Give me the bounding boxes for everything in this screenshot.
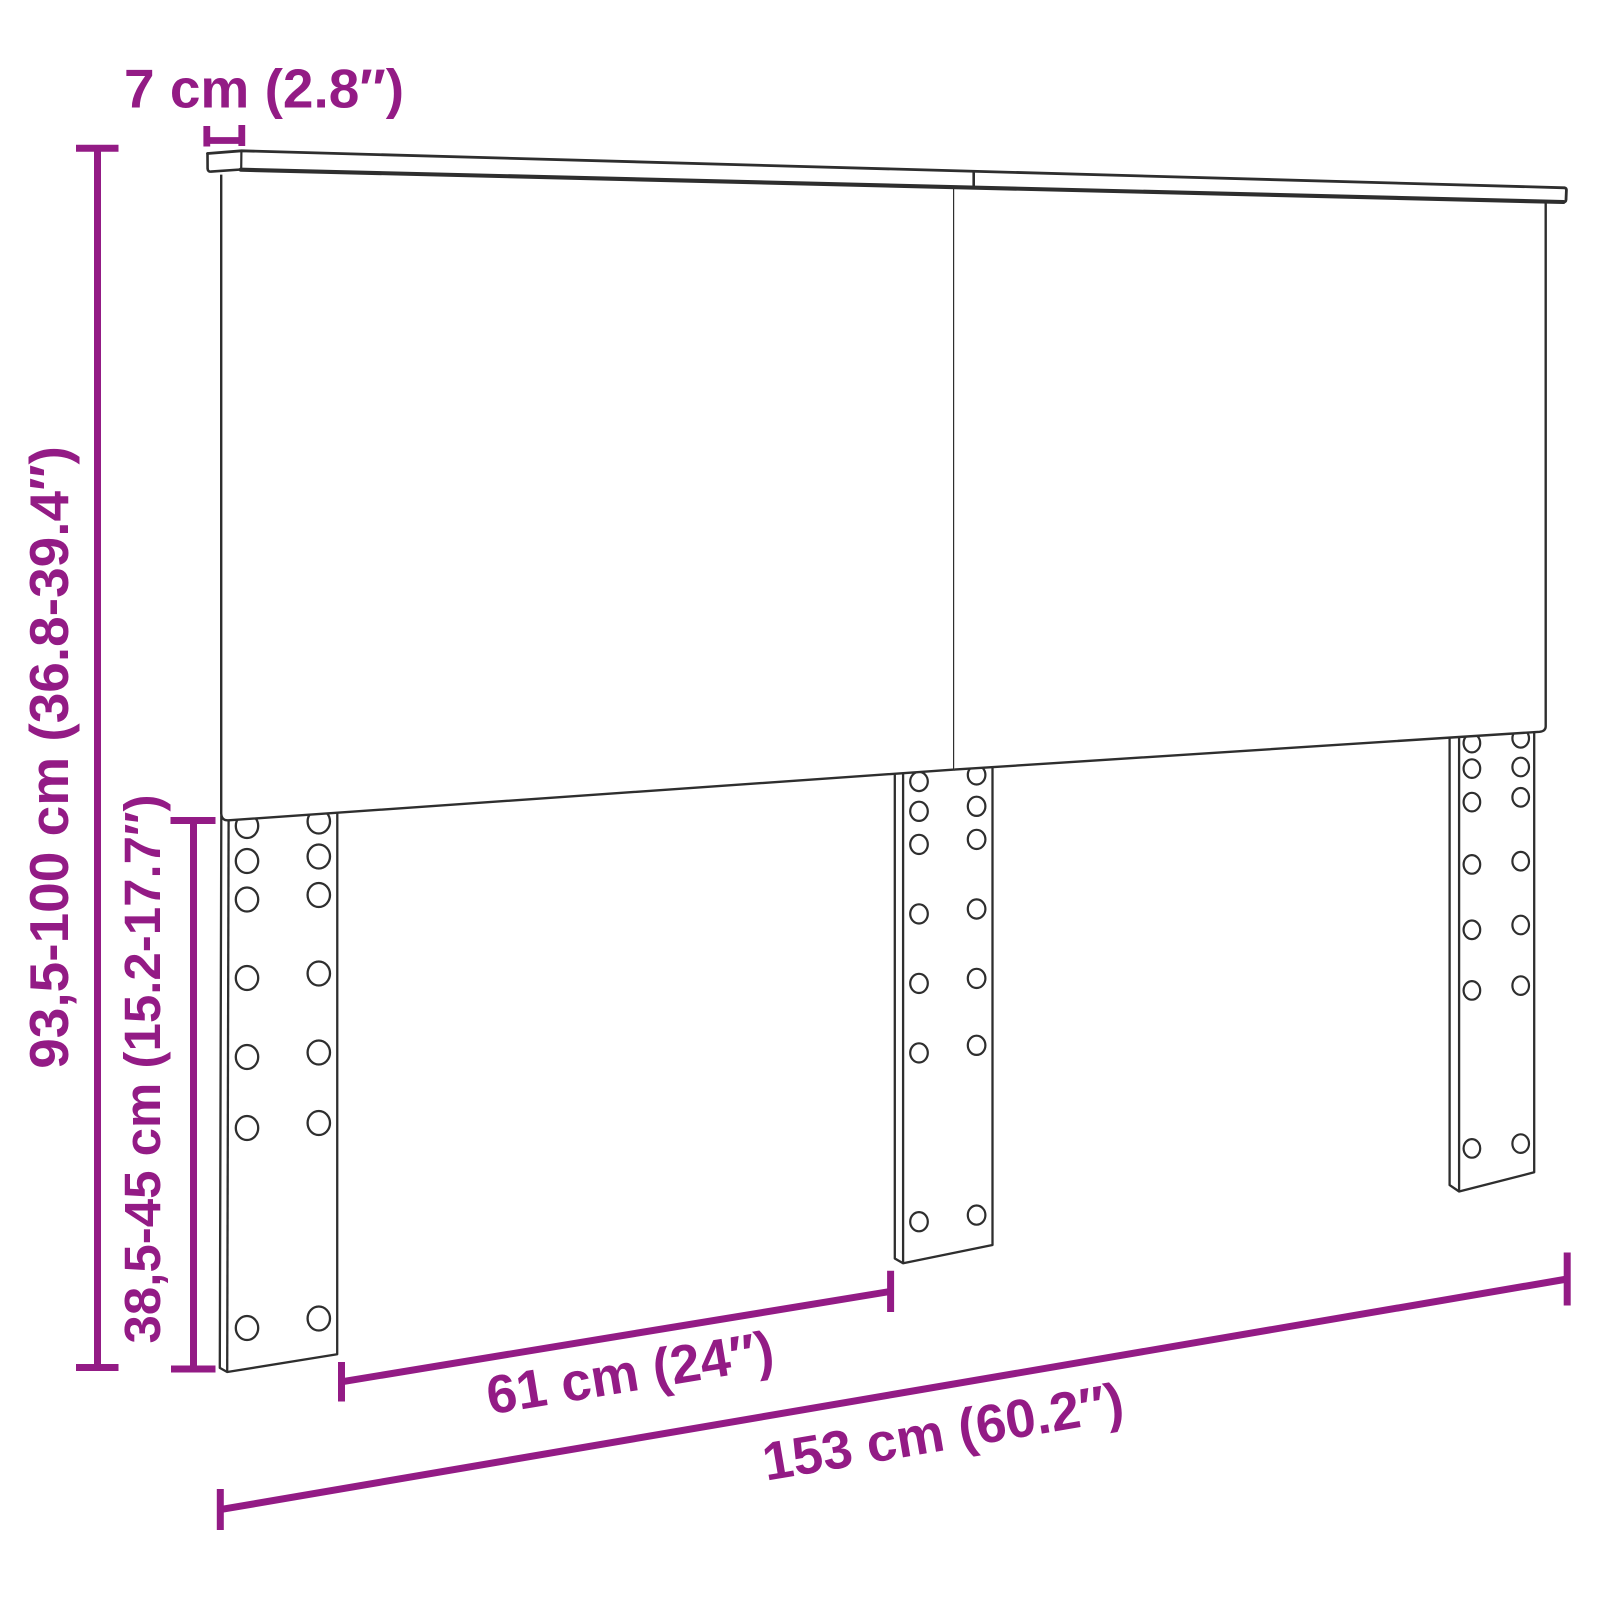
svg-text:38,5-45 cm (15.2-17.7″): 38,5-45 cm (15.2-17.7″) (114, 795, 171, 1344)
svg-text:93,5-100 cm (36.8-39.4″): 93,5-100 cm (36.8-39.4″) (18, 446, 80, 1069)
svg-text:7 cm (2.8″): 7 cm (2.8″) (124, 58, 404, 120)
